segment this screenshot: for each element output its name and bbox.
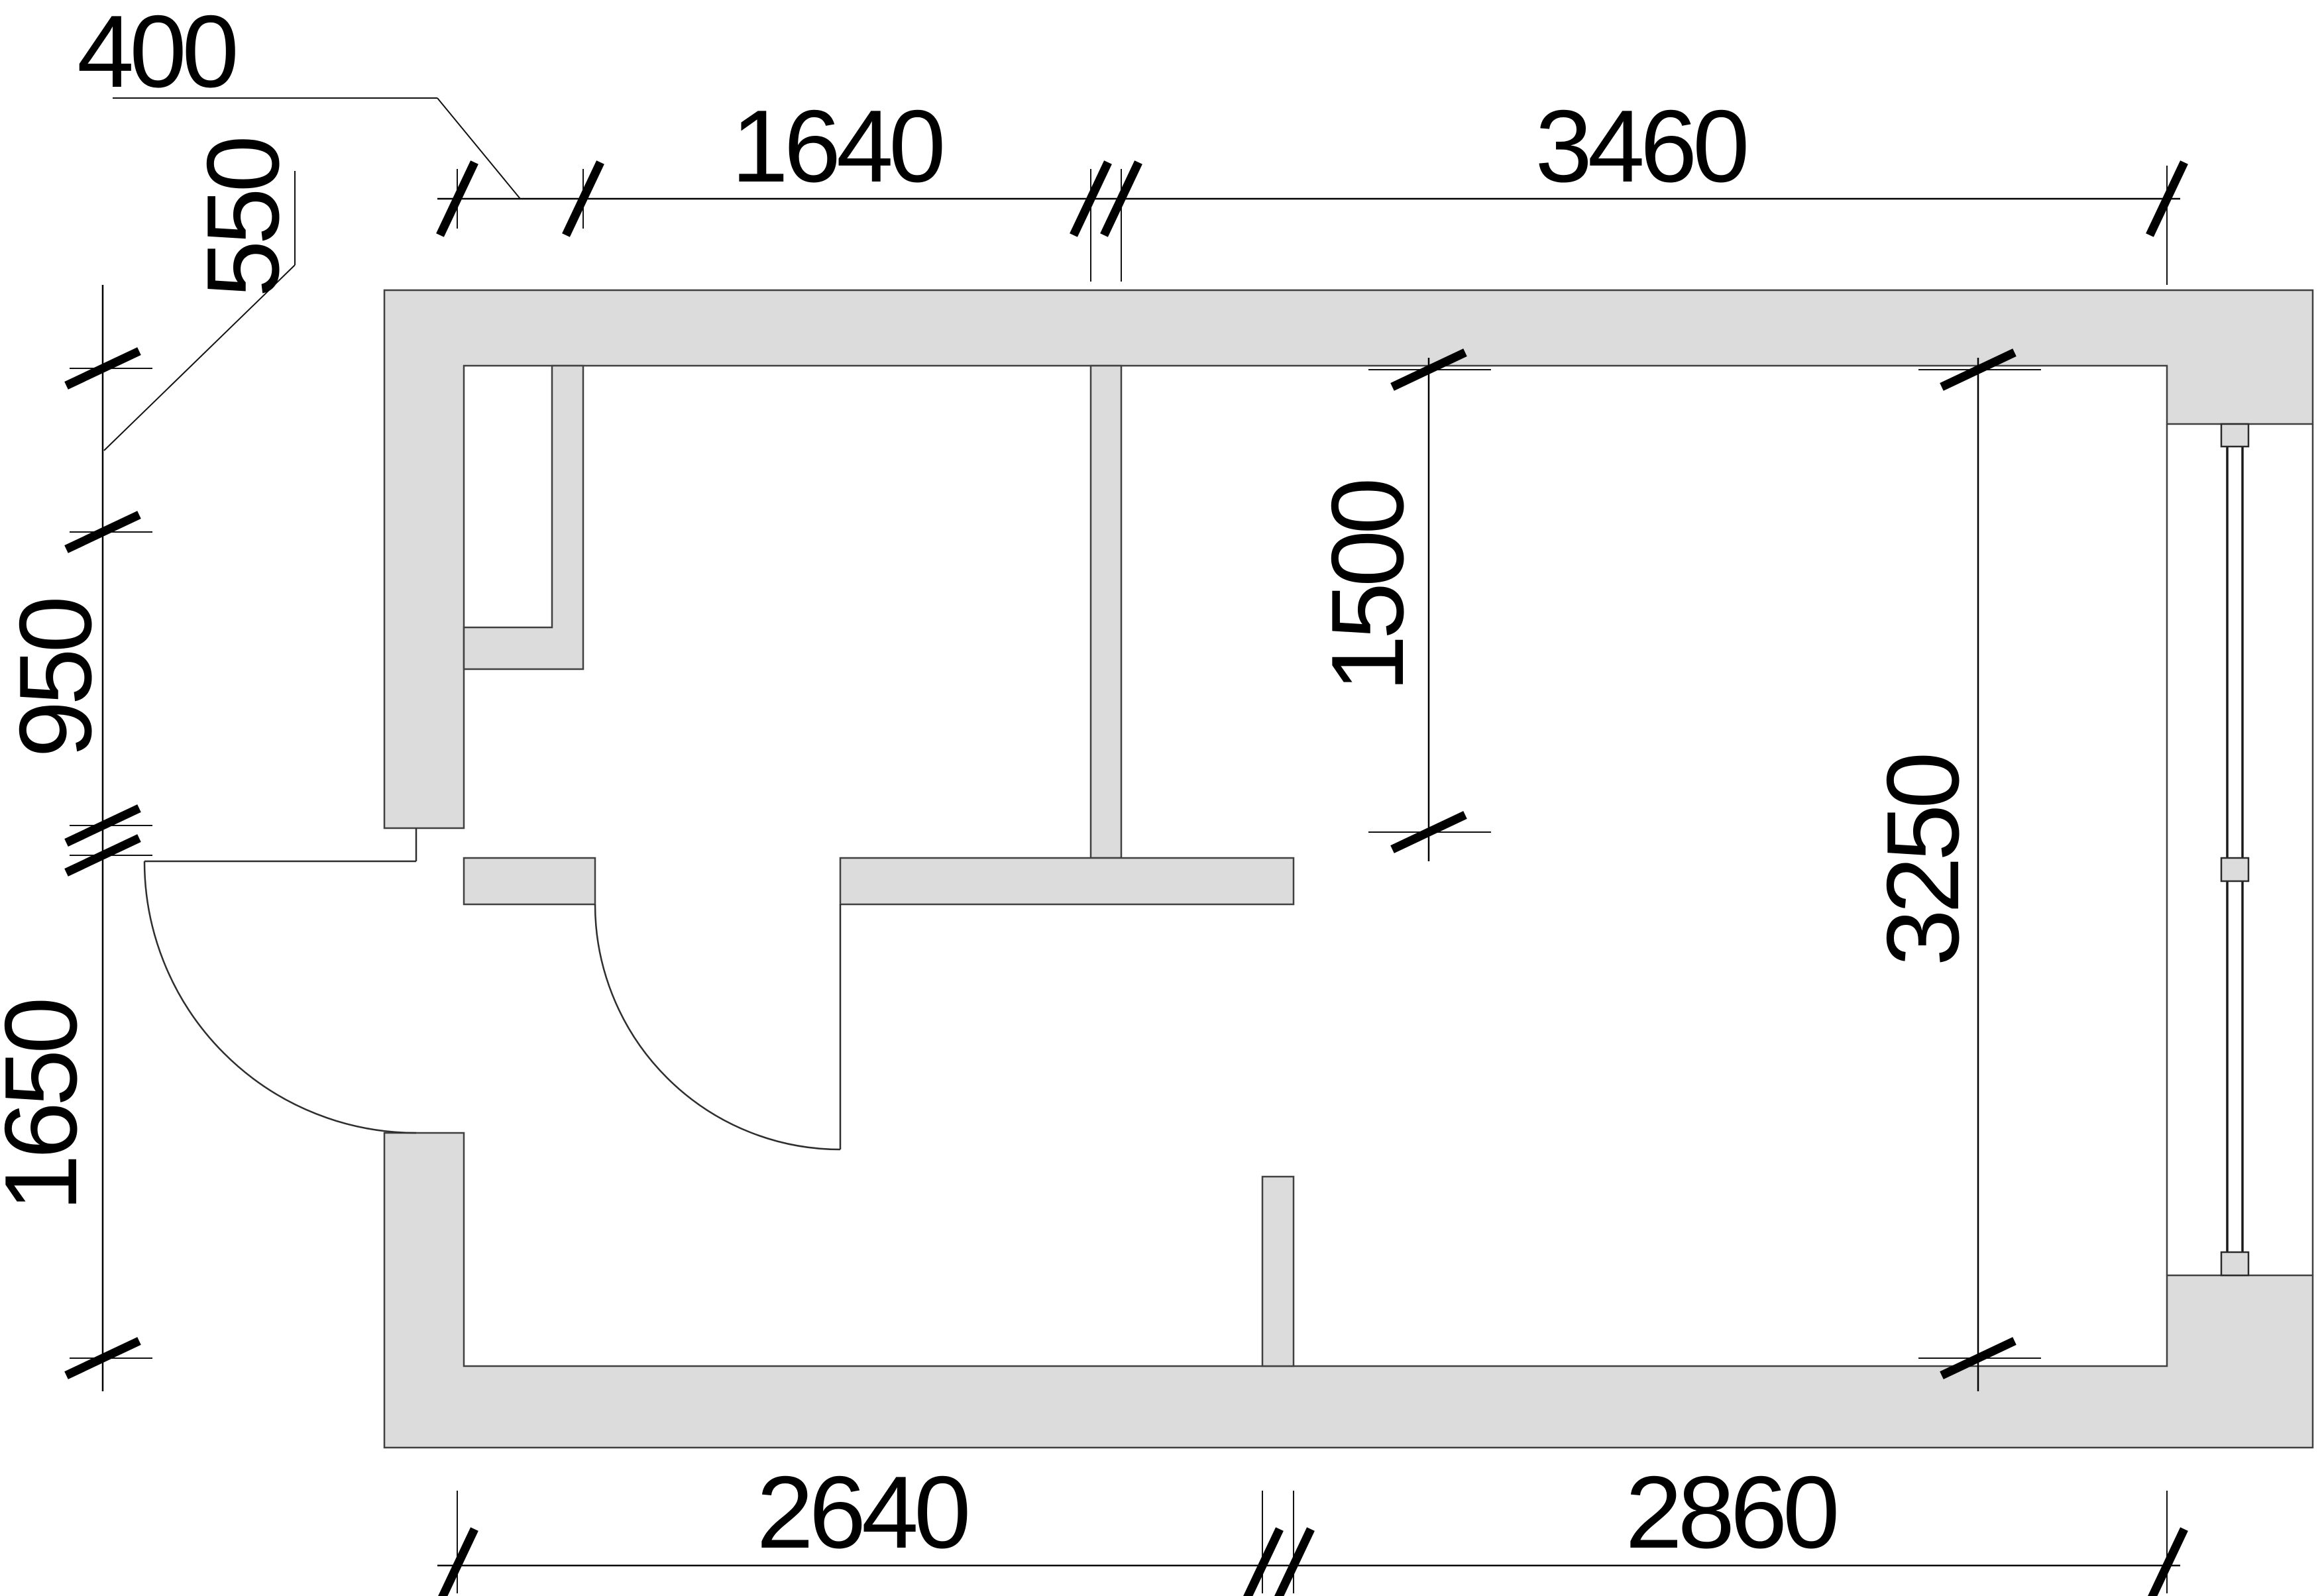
dim-top-3460-label: 3460 — [1535, 89, 1747, 203]
dim-interior-3250-label: 3250 — [1865, 755, 1980, 967]
dimension-interior-3250: 3250 — [1865, 352, 2041, 1391]
dim-interior-1500-label: 1500 — [1310, 481, 1425, 692]
dim-left-550-label: 550 — [186, 138, 300, 297]
walls — [384, 290, 2313, 1448]
window-right-wall — [2167, 424, 2313, 1275]
dim-left-950-label: 950 — [0, 599, 113, 757]
room-door-swing-arc — [595, 904, 840, 1149]
dimension-chain-bottom: 2640 2860 — [437, 1455, 2184, 1596]
dimension-chain-left: 550 950 1650 — [0, 138, 300, 1391]
outer-wall-bottom-shell — [384, 1133, 2313, 1448]
dim-400-leader-diagonal — [437, 98, 520, 199]
window-mullion-top — [2221, 424, 2248, 447]
window-mullion-middle — [2221, 858, 2248, 881]
stub-wall — [1262, 1177, 1294, 1366]
window-mullion-bottom — [2221, 1252, 2248, 1275]
dim-bottom-2860-label: 2860 — [1626, 1455, 1837, 1569]
interior-wall-right-piece — [840, 858, 1294, 904]
shaft-wall — [464, 366, 583, 669]
dimension-chain-top: 400 1640 3460 — [77, 0, 2184, 285]
floor-plan-sheet: 400 1640 3460 550 950 1650 2640 2860 — [0, 0, 2324, 1596]
partition-wall — [1091, 366, 1121, 858]
dim-bottom-2640-label: 2640 — [757, 1455, 968, 1569]
dim-top-400-label: 400 — [77, 0, 235, 109]
dim-top-1640-label: 1640 — [732, 89, 943, 203]
dimension-interior-1500: 1500 — [1310, 352, 1491, 861]
interior-wall-left-piece — [464, 858, 595, 904]
floor-plan-drawing: 400 1640 3460 550 950 1650 2640 2860 — [0, 0, 2324, 1596]
dim-left-1650-label: 1650 — [0, 1000, 98, 1212]
entry-door-swing-arc — [144, 861, 416, 1133]
